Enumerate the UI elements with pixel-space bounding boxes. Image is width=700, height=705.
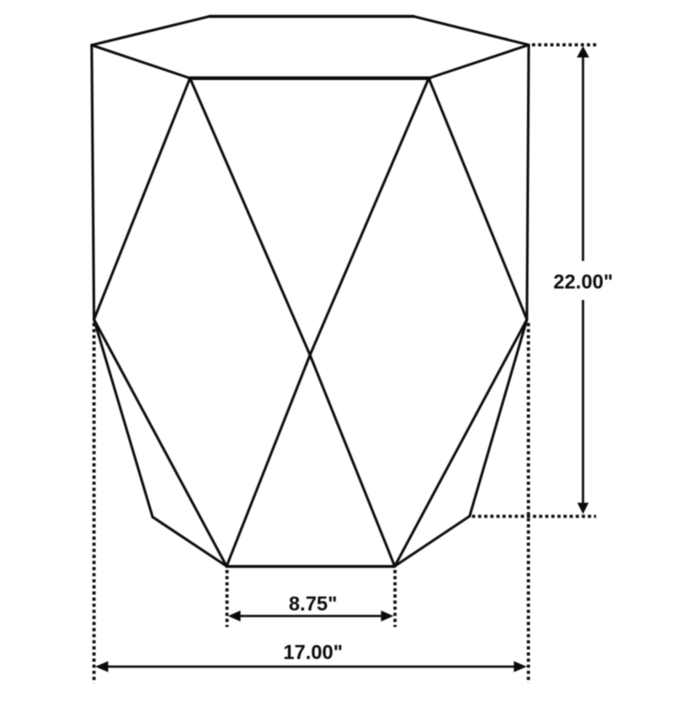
svg-text:22.00": 22.00" [553,272,613,294]
svg-text:8.75": 8.75" [289,594,337,616]
svg-text:17.00": 17.00" [283,642,343,664]
